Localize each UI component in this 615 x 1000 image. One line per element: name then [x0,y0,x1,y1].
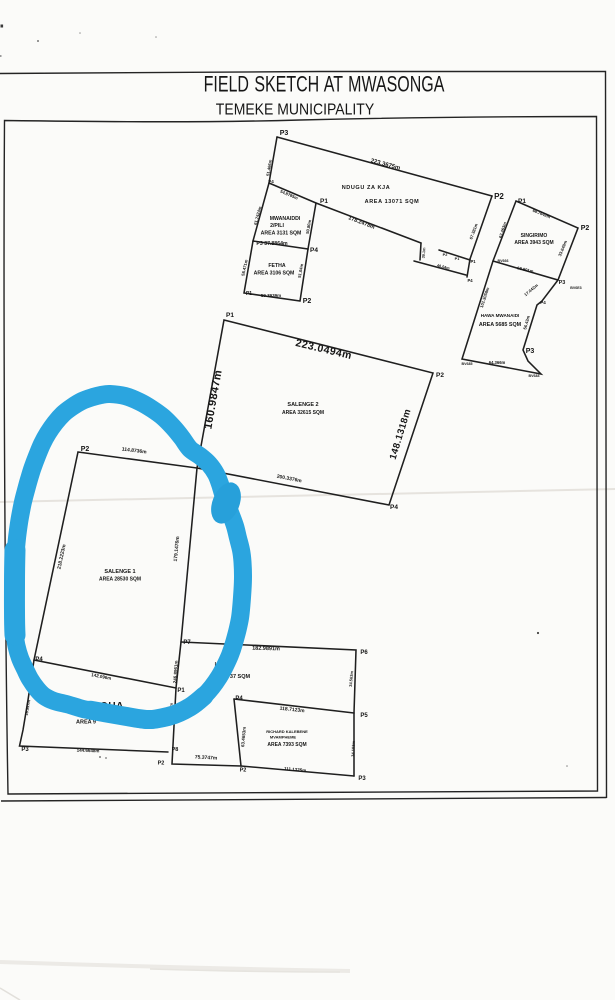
svg-text:P4: P4 [310,247,318,254]
svg-text:34.563m: 34.563m [348,670,354,687]
svg-text:P4: P4 [540,300,546,305]
svg-text:BV6E3: BV6E3 [570,286,581,290]
svg-text:P4: P4 [390,504,398,511]
svg-text:P2: P2 [81,446,90,453]
svg-text:AREA 5685 SQM: AREA 5685 SQM [479,322,522,328]
svg-text:246.8961m: 246.8961m [172,660,179,683]
svg-text:P5: P5 [360,713,368,719]
svg-text:P2: P2 [443,253,448,257]
svg-text:62.463m: 62.463m [498,221,508,239]
svg-text:P1: P1 [455,257,460,261]
svg-text:P1: P1 [177,688,185,694]
svg-text:P2: P2 [158,761,165,767]
svg-text:200.3376m: 200.3376m [276,474,303,485]
svg-text:2/PILI: 2/PILI [270,223,284,229]
svg-text:FIELD SKETCH AT MWASONGA: FIELD SKETCH AT MWASONGA [204,73,445,97]
svg-text:P6: P6 [360,650,368,656]
svg-text:BV666: BV666 [498,259,509,263]
svg-text:P3: P3 [280,130,289,137]
svg-text:223.0494m: 223.0494m [294,337,353,362]
svg-text:P1: P1 [470,259,476,264]
svg-text:AREA 3106 SQM: AREA 3106 SQM [254,271,295,277]
svg-text:54.8785m: 54.8785m [279,189,299,201]
svg-text:P1: P1 [246,291,252,297]
svg-text:AREA 3131 SQM: AREA 3131 SQM [261,231,302,237]
svg-text:AREA 3943 SQM: AREA 3943 SQM [514,240,553,246]
svg-text:P3 37.8864m: P3 37.8864m [256,241,288,247]
svg-text:AREA 7393 SQM: AREA 7393 SQM [267,742,306,748]
svg-text:223.3675m: 223.3675m [370,158,401,172]
svg-text:64.366m: 64.366m [489,360,506,365]
svg-text:P8: P8 [172,747,179,753]
svg-text:68.801m: 68.801m [517,265,534,273]
svg-text:179.1476m: 179.1476m [173,536,181,562]
svg-text:P4: P4 [268,179,274,184]
svg-text:AREA 32615 SQM: AREA 32615 SQM [282,410,324,416]
svg-text:P3: P3 [358,776,366,782]
svg-text:111.1325m: 111.1325m [284,766,307,773]
svg-text:16.997m: 16.997m [24,699,32,716]
svg-text:P2: P2 [581,225,590,232]
svg-text:AREA 13071 SQM: AREA 13071 SQM [365,199,420,205]
svg-text:P4: P4 [235,696,243,702]
svg-text:RICHARD KALEBENE: RICHARD KALEBENE [266,729,308,734]
svg-text:HAWA MWANAIDI: HAWA MWANAIDI [481,313,520,318]
svg-text:P4: P4 [467,278,473,283]
svg-text:TEMEKE MUNICIPALITY: TEMEKE MUNICIPALITY [216,102,374,119]
svg-text:P2: P2 [436,372,444,379]
svg-text:P4: P4 [35,657,43,663]
svg-text:P1: P1 [320,198,328,205]
svg-text:P1: P1 [518,198,526,205]
svg-text:P3: P3 [526,348,535,355]
svg-text:59.3939m: 59.3939m [261,293,281,298]
svg-text:P3: P3 [21,747,29,753]
svg-text:P2: P2 [303,298,312,305]
svg-text:178.2478m: 178.2478m [347,215,375,231]
svg-text:142.096m: 142.096m [91,672,112,681]
svg-text:114.8736m: 114.8736m [121,447,147,456]
svg-text:30.1m: 30.1m [422,247,427,259]
svg-text:P1: P1 [226,312,234,319]
svg-text:P3: P3 [559,280,566,286]
svg-text:BV684: BV684 [529,374,540,378]
svg-text:P7: P7 [183,640,191,646]
svg-text:75.3747m: 75.3747m [195,754,218,761]
svg-text:144.6648m: 144.6648m [77,748,100,754]
svg-text:MWANAIDDI: MWANAIDDI [270,216,301,222]
svg-text:P2: P2 [494,192,504,201]
svg-text:BV685: BV685 [462,362,473,366]
svg-text:NDUGU ZA KJA: NDUGU ZA KJA [342,185,391,191]
svg-text:118.7123m: 118.7123m [279,706,305,715]
svg-text:68.7642m: 68.7642m [532,208,552,220]
svg-text:34.103m: 34.103m [350,740,356,756]
svg-text:182.9891m: 182.9891m [252,646,280,653]
svg-text:61.7424m: 61.7424m [253,206,263,226]
svg-text:63.4653m: 63.4653m [240,727,247,748]
svg-text:148.1318m: 148.1318m [388,408,414,461]
svg-text:SINGIRIMO: SINGIRIMO [521,233,548,239]
svg-text:SALENGE 2: SALENGE 2 [287,402,318,408]
svg-text:33.649m: 33.649m [557,240,568,257]
svg-text:101.3058m: 101.3058m [479,286,490,308]
svg-text:AREA 28530 SQM: AREA 28530 SQM [99,577,141,583]
svg-text:AREA 9: AREA 9 [76,720,96,726]
svg-text:P2: P2 [240,768,247,774]
svg-text:FETHA: FETHA [268,263,286,269]
svg-text:MVAMPHEME: MVAMPHEME [270,735,296,740]
svg-text:SALENGE 1: SALENGE 1 [104,569,135,575]
svg-text:160.9847m: 160.9847m [202,369,224,430]
svg-text:37 SQM: 37 SQM [230,674,251,680]
svg-text:17.042m: 17.042m [523,282,539,297]
